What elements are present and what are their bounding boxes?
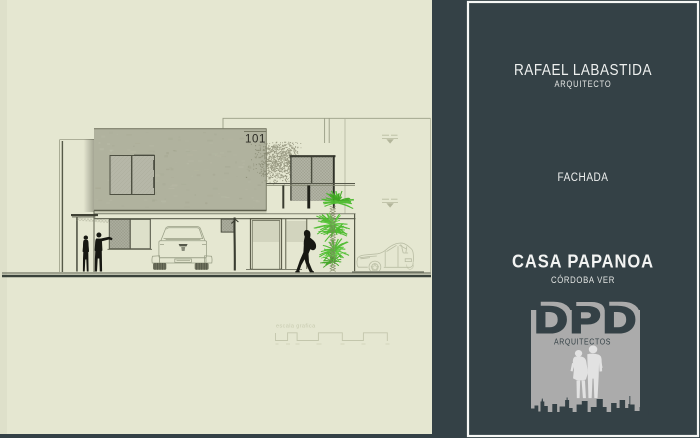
svg-text:ARQUITECTOS: ARQUITECTOS	[554, 338, 611, 347]
svg-text:DPD: DPD	[535, 300, 639, 341]
svg-text:101: 101	[245, 134, 266, 146]
svg-text:escala grafica: escala grafica	[276, 324, 316, 330]
svg-text:RAFAEL LABASTIDA: RAFAEL LABASTIDA	[514, 62, 652, 79]
svg-text:CÓRDOBA VER: CÓRDOBA VER	[551, 275, 615, 286]
svg-text:FACHADA: FACHADA	[558, 172, 609, 184]
svg-text:CASA PAPANOA: CASA PAPANOA	[512, 252, 654, 272]
svg-text:ARQUITECTO: ARQUITECTO	[555, 79, 612, 89]
